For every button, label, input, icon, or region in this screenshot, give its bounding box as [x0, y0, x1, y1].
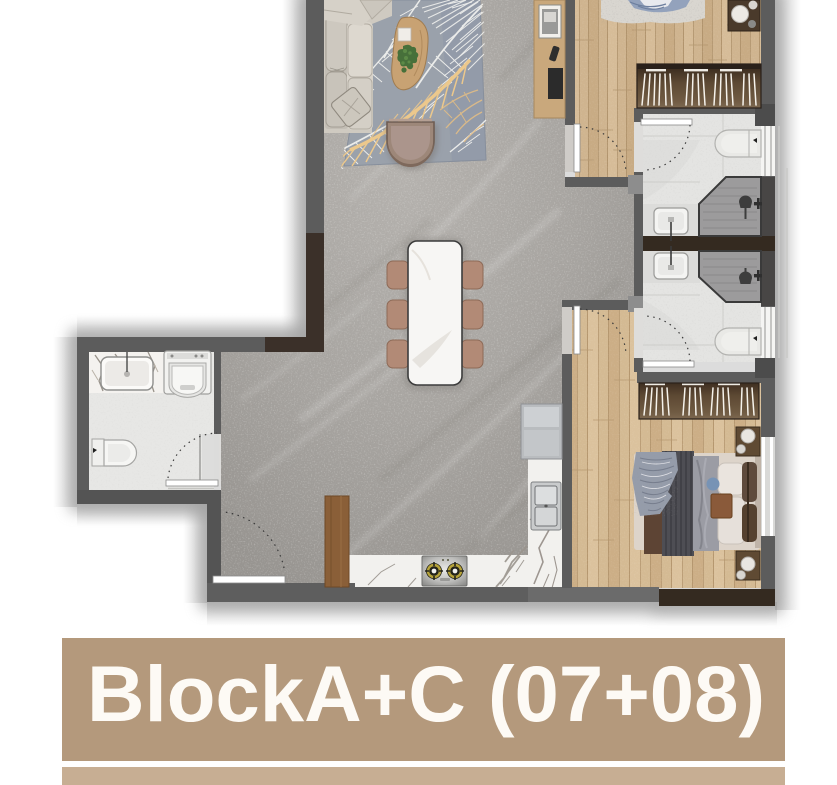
svg-text:BlockA+C (07+08): BlockA+C (07+08) — [87, 649, 765, 738]
